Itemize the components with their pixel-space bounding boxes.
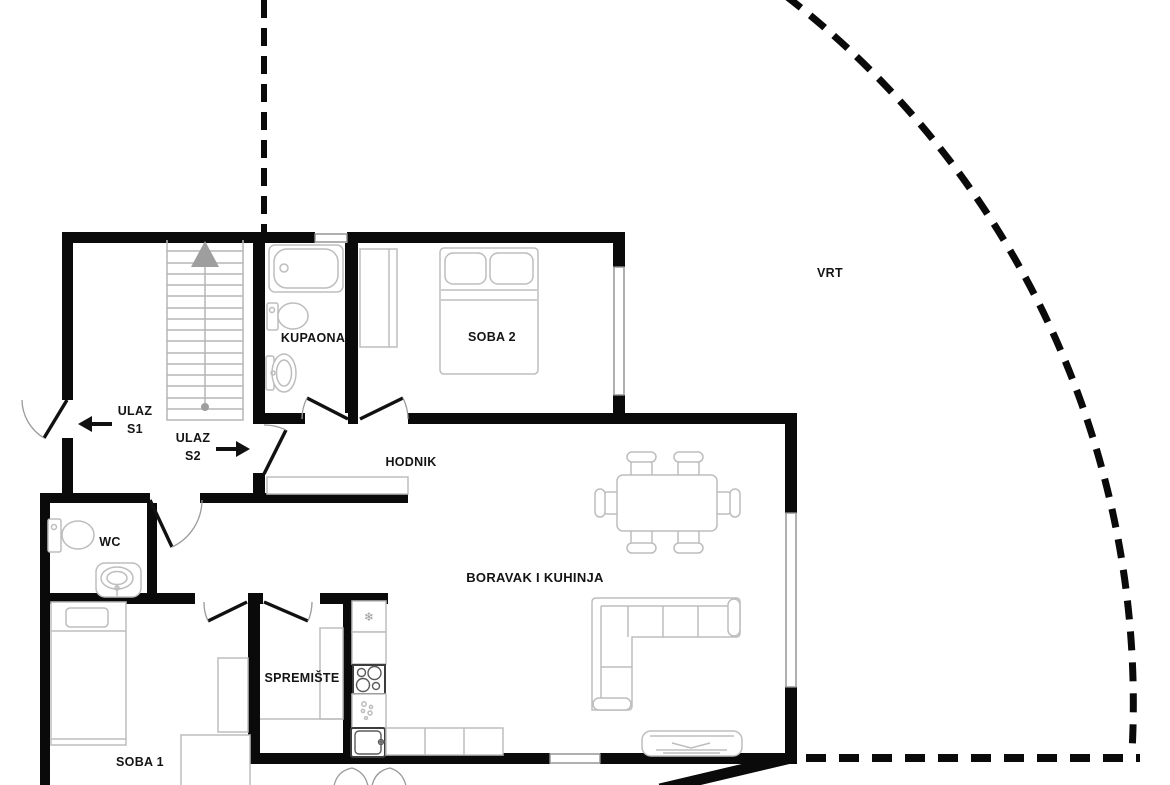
door-soba2 — [360, 398, 408, 419]
wardrobe-soba2 — [360, 249, 397, 347]
label-ulaz-s2-line1: ULAZ — [176, 431, 211, 445]
toilet — [267, 303, 308, 330]
label-soba2: SOBA 2 — [468, 330, 516, 344]
ulaz-s1-arrow-icon — [78, 416, 112, 432]
ulaz-s2-arrow-icon — [216, 441, 250, 457]
window-bottom — [550, 754, 600, 763]
dining-chair — [627, 452, 656, 476]
label-wc: WC — [99, 535, 120, 549]
stairs-direction-arrow-icon — [191, 241, 219, 267]
wardrobe-soba1 — [218, 658, 248, 732]
window-boravak — [786, 513, 796, 687]
kitchen: ❄ — [351, 601, 503, 757]
single-bed — [51, 602, 126, 745]
pedestal-sink — [266, 354, 296, 392]
double-bed — [440, 248, 538, 374]
kitchen-appliance — [352, 694, 386, 728]
stairs-start-dot — [201, 403, 209, 411]
kupaona-fixtures — [266, 245, 343, 392]
sofa — [592, 598, 740, 710]
tv-console — [642, 731, 742, 756]
kitchen-cabinet — [352, 632, 386, 664]
hodnik-closet — [267, 477, 408, 494]
door-spremiste — [264, 602, 312, 621]
wc-sink — [96, 563, 141, 597]
label-vrt: VRT — [817, 266, 843, 280]
wc-toilet — [48, 519, 94, 552]
garden-boundary — [264, 0, 1140, 758]
desk-soba1 — [181, 735, 250, 785]
label-boravak: BORAVAK I KUHINJA — [466, 570, 604, 585]
window-soba2 — [614, 267, 624, 395]
dining-table — [617, 475, 717, 531]
door-soba1 — [204, 602, 247, 621]
door-ulaz-s2 — [264, 425, 286, 474]
soba2-furniture — [360, 248, 538, 374]
window-kupaona — [315, 234, 347, 242]
label-kupaona: KUPAONA — [281, 331, 345, 345]
dining-chair — [627, 530, 656, 553]
entrance-arrows — [78, 416, 250, 457]
kitchen-sink — [351, 728, 390, 757]
stove — [353, 665, 385, 694]
dining-set — [595, 452, 740, 553]
stairs — [167, 240, 243, 420]
bathtub — [269, 245, 343, 292]
label-spremiste: SPREMIŠTE — [265, 670, 340, 685]
door-kupaona — [302, 398, 348, 419]
floor-plan: ❄ — [0, 0, 1170, 785]
dining-chair — [674, 530, 703, 553]
double-door-bottom — [334, 768, 406, 785]
fridge-icon: ❄ — [364, 610, 374, 624]
dining-chair — [674, 452, 703, 476]
kitchen-counter — [386, 728, 503, 755]
door-hall — [150, 500, 202, 547]
dining-chair — [595, 489, 619, 517]
garden-boundary-arc — [786, 0, 1133, 752]
label-ulaz-s1-line1: ULAZ — [118, 404, 153, 418]
dining-chair — [716, 489, 740, 517]
label-soba1: SOBA 1 — [116, 755, 164, 769]
door-ulaz-s1 — [22, 400, 67, 438]
wc-fixtures — [48, 519, 141, 597]
label-ulaz-s1-line2: S1 — [127, 422, 143, 436]
label-hodnik: HODNIK — [385, 455, 436, 469]
label-ulaz-s2-line2: S2 — [185, 449, 201, 463]
